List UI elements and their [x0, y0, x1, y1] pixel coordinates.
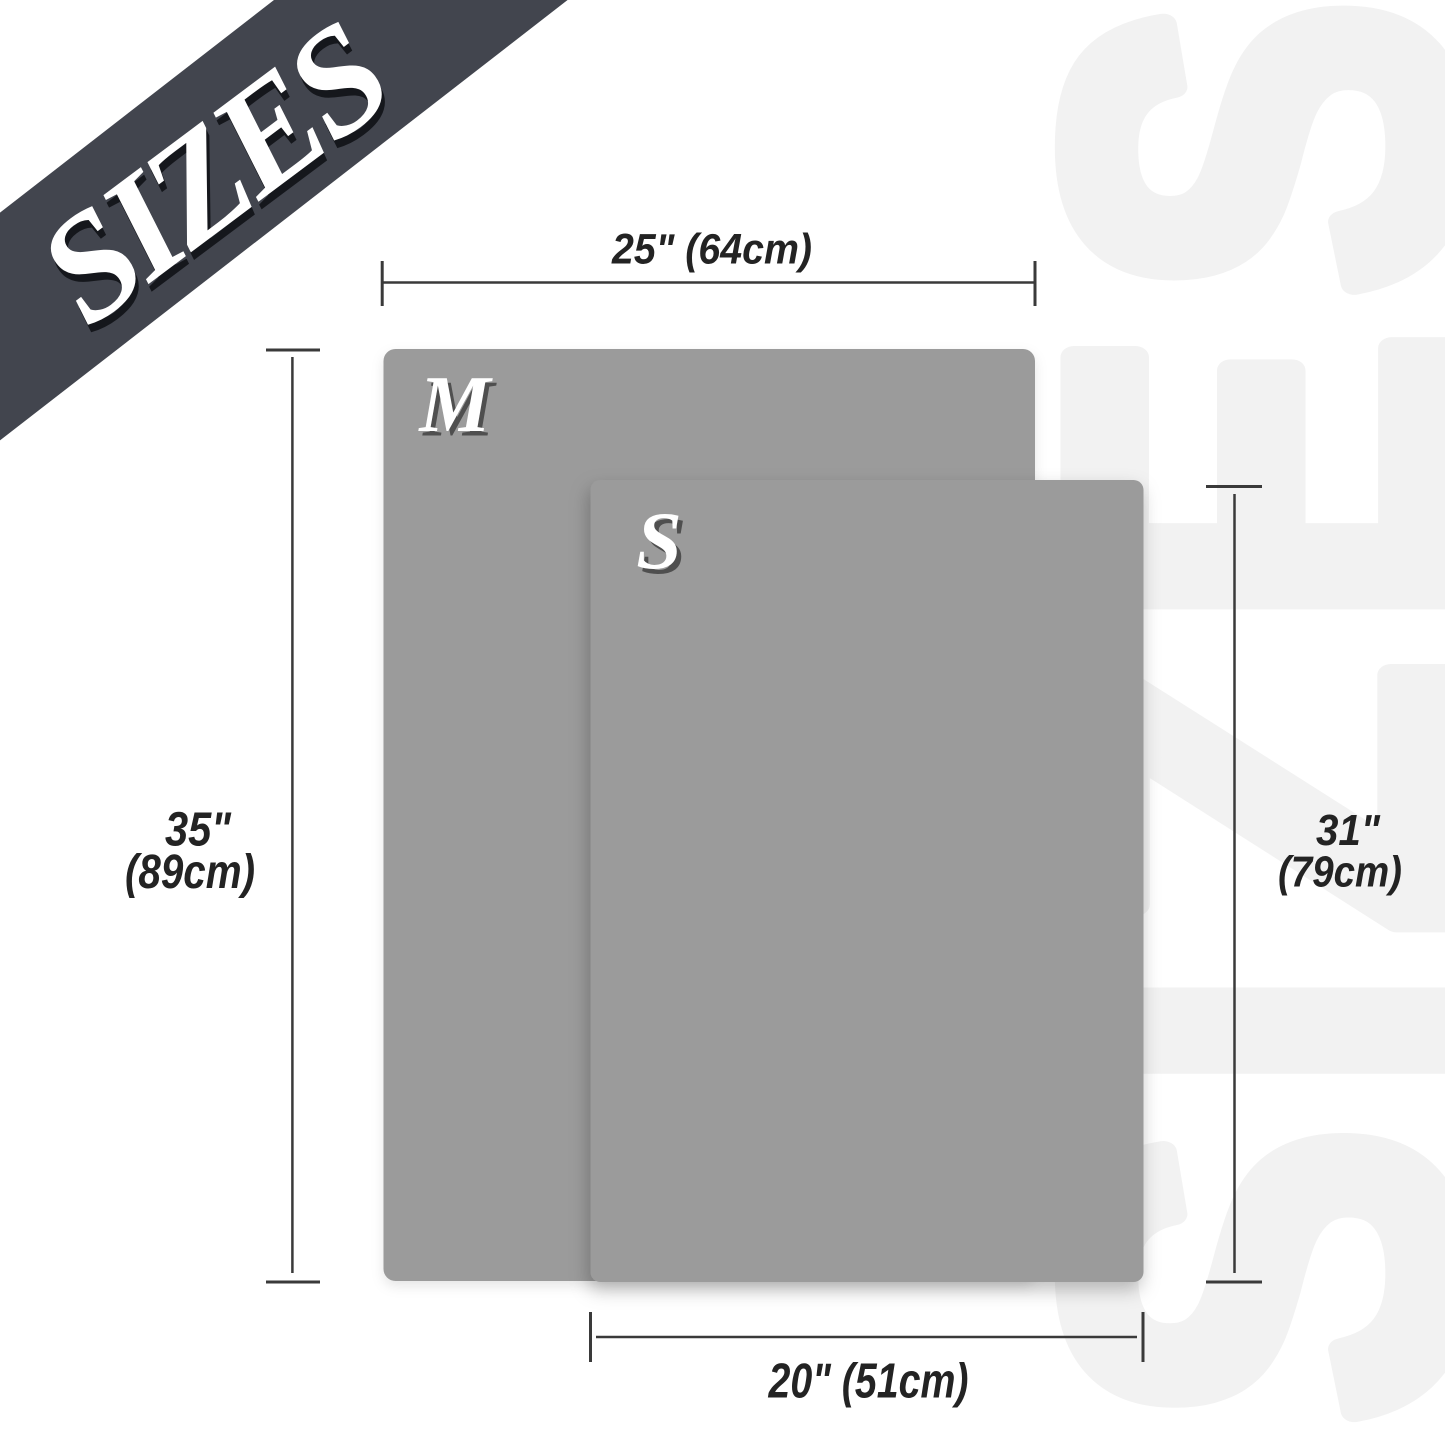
svg-text:25" (64cm): 25" (64cm): [611, 226, 812, 274]
svg-text:20" (51cm): 20" (51cm): [768, 1355, 969, 1409]
svg-text:M: M: [417, 361, 493, 449]
svg-text:S: S: [636, 495, 682, 586]
svg-text:(89cm): (89cm): [125, 846, 255, 899]
svg-text:(79cm): (79cm): [1278, 848, 1402, 897]
